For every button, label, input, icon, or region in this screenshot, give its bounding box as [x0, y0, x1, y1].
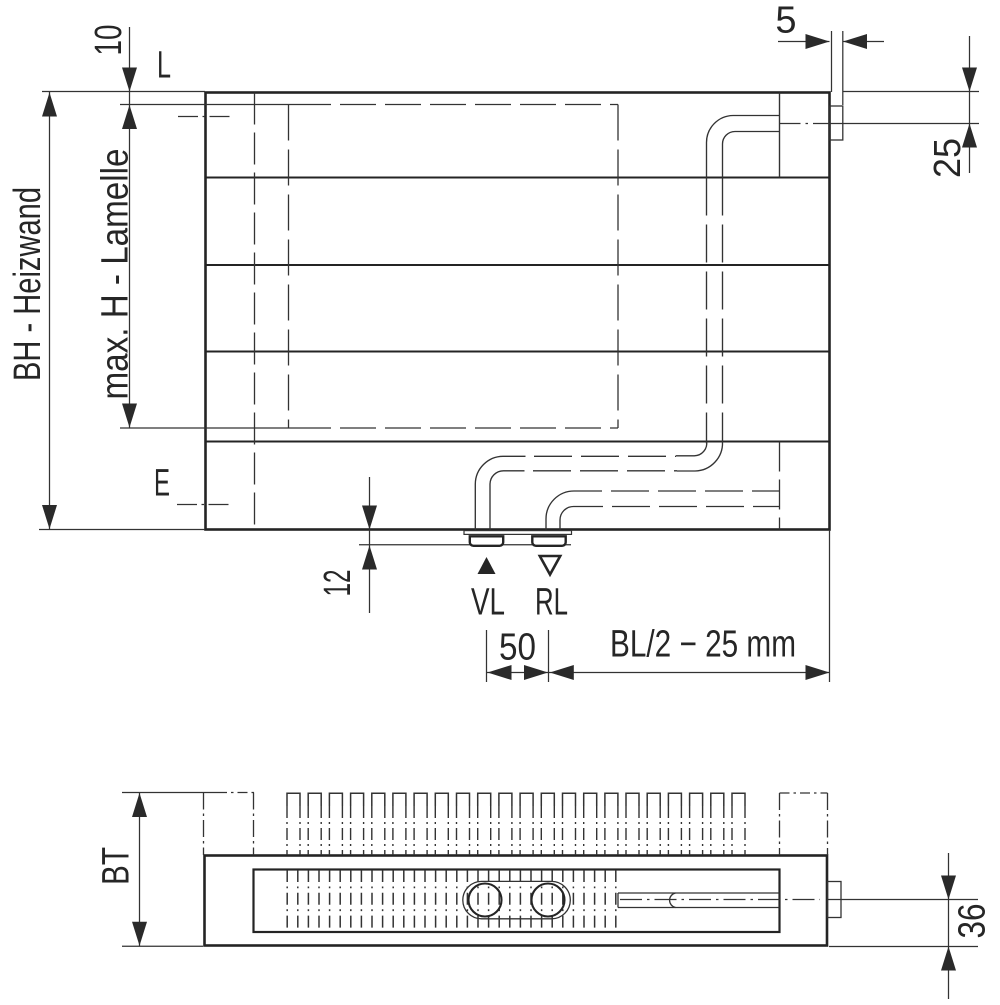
svg-text:L: L	[157, 45, 171, 87]
svg-text:max. H - Lamelle: max. H - Lamelle	[95, 149, 137, 400]
svg-text:5: 5	[775, 0, 796, 42]
svg-text:E: E	[154, 463, 170, 505]
svg-text:25: 25	[927, 138, 969, 178]
svg-text:RL: RL	[535, 582, 568, 624]
svg-text:10: 10	[88, 25, 130, 56]
svg-text:BT: BT	[96, 847, 138, 885]
svg-text:VL: VL	[471, 582, 505, 624]
svg-text:50: 50	[499, 627, 536, 669]
svg-text:36: 36	[952, 904, 994, 939]
svg-text:BL/2 − 25 mm: BL/2 − 25 mm	[610, 624, 796, 666]
svg-text:12: 12	[317, 570, 359, 597]
svg-text:BH - Heizwand: BH - Heizwand	[7, 187, 49, 381]
